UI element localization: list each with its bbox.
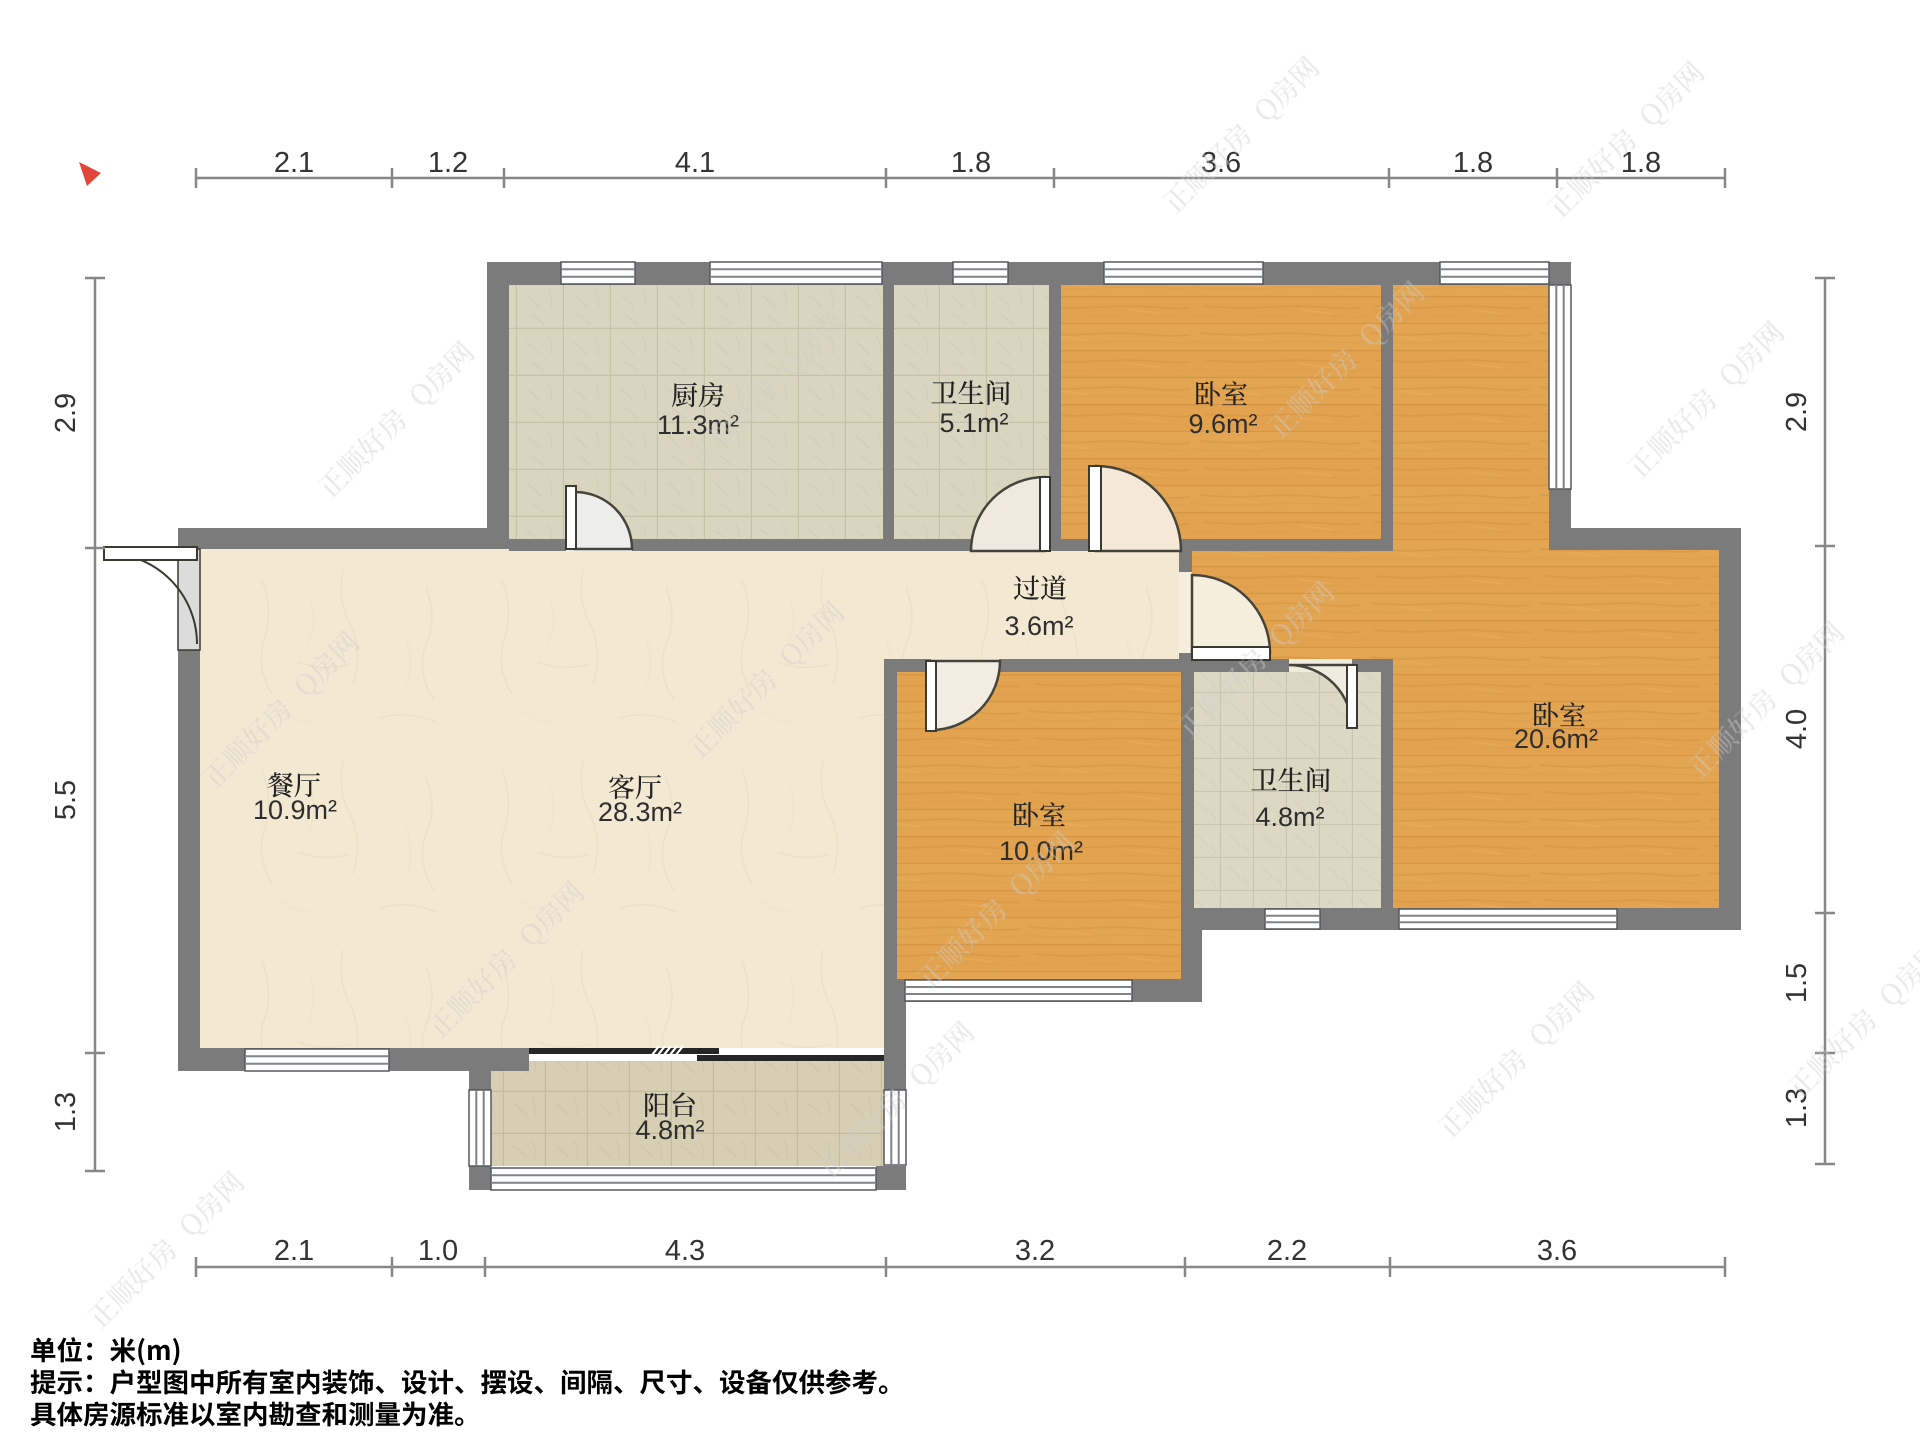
svg-text:2.1: 2.1	[274, 1235, 314, 1267]
svg-text:9.6m²: 9.6m²	[1188, 409, 1257, 439]
svg-text:20.6m²: 20.6m²	[1514, 724, 1598, 754]
svg-text:4.8m²: 4.8m²	[635, 1115, 704, 1145]
svg-text:10.0m²: 10.0m²	[999, 836, 1083, 866]
svg-text:4.1: 4.1	[675, 147, 715, 179]
svg-text:10.9m²: 10.9m²	[253, 795, 337, 825]
svg-text:28.3m²: 28.3m²	[598, 797, 682, 827]
svg-text:2.9: 2.9	[50, 393, 82, 433]
svg-text:1.0: 1.0	[418, 1235, 458, 1267]
svg-text:4.3: 4.3	[665, 1235, 705, 1267]
svg-text:4.8m²: 4.8m²	[1255, 802, 1324, 832]
svg-text:2.9: 2.9	[1781, 392, 1813, 432]
svg-text:1.2: 1.2	[428, 147, 468, 179]
svg-text:3.2: 3.2	[1015, 1235, 1055, 1267]
svg-text:3.6: 3.6	[1537, 1235, 1577, 1267]
svg-text:1.8: 1.8	[951, 147, 991, 179]
svg-text:1.5: 1.5	[1781, 963, 1813, 1003]
svg-text:5.5: 5.5	[50, 780, 82, 820]
svg-text:2.1: 2.1	[274, 147, 314, 179]
svg-text:5.1m²: 5.1m²	[939, 408, 1008, 438]
svg-text:1.8: 1.8	[1621, 147, 1661, 179]
svg-text:1.8: 1.8	[1453, 147, 1493, 179]
svg-text:2.2: 2.2	[1267, 1235, 1307, 1267]
svg-text:1.3: 1.3	[50, 1092, 82, 1132]
svg-text:4.0: 4.0	[1781, 709, 1813, 749]
svg-text:3.6m²: 3.6m²	[1004, 611, 1073, 641]
svg-text:1.3: 1.3	[1781, 1088, 1813, 1128]
